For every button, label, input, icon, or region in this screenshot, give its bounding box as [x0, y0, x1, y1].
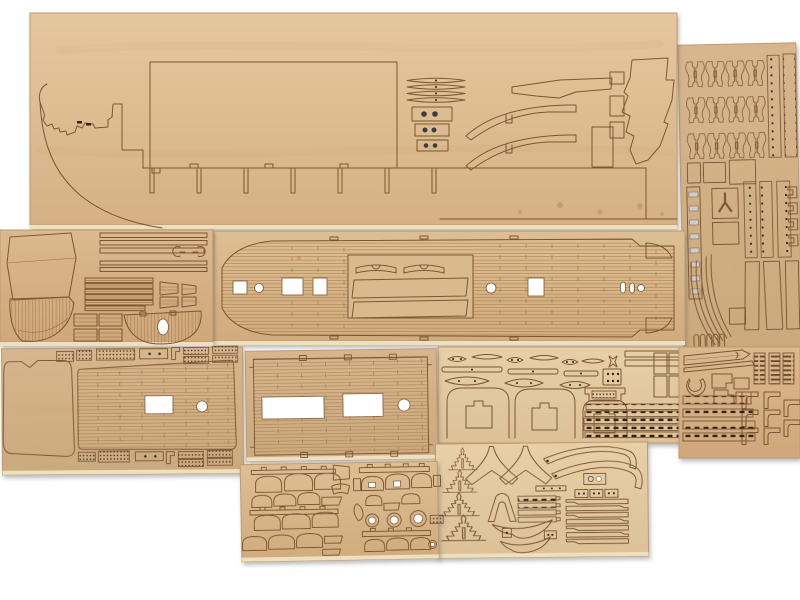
tapered-plank-strips: [85, 278, 153, 311]
sheet-main-deck: [214, 231, 685, 345]
sheet-boat-frames: [240, 461, 444, 562]
stem-slot: [77, 121, 82, 124]
sheet-stern-parts: [0, 230, 213, 346]
slotted-ladder-strips: [584, 404, 686, 438]
sheet-hull-sides: [30, 13, 677, 229]
planked-foredeck: [78, 360, 237, 450]
transom-plank-panel: [348, 255, 473, 318]
stem-slot: [86, 123, 91, 126]
sheet-fore-deck: [2, 346, 244, 475]
wood-knot: [297, 256, 301, 260]
sheet-mast-parts: [435, 442, 648, 558]
sheet-fittings-mid: [438, 347, 687, 443]
laser-cut-sheets-photo: photograph of tan plywood sheets with la…: [0, 0, 800, 600]
photo-canvas: photograph of tan plywood sheets with la…: [0, 0, 800, 600]
sheet-mid-deck: [245, 349, 438, 462]
planked-deck-panel: [249, 354, 432, 459]
ladders: [754, 353, 794, 384]
sheet-fittings-right: [679, 347, 800, 458]
sheet-fittings-column: [678, 43, 800, 351]
